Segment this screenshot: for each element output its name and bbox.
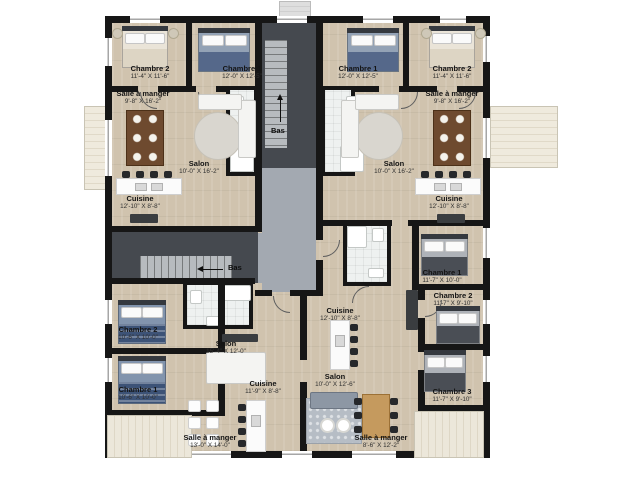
window: [483, 300, 490, 324]
window: [282, 451, 312, 458]
sink: [434, 183, 446, 191]
headboard: [122, 26, 168, 31]
pouf: [320, 418, 335, 433]
sink: [335, 335, 345, 347]
stool: [122, 171, 130, 178]
stool: [449, 171, 457, 178]
room-label-br-salon: Salon 10'-0" X 12'-6": [315, 372, 355, 389]
stool: [150, 171, 158, 178]
headboard: [421, 234, 468, 239]
room-label-tr-salon: Salon 10'-0" X 16'-2": [374, 159, 414, 176]
wall: [403, 23, 409, 86]
kitchen-island: [116, 178, 182, 195]
wall: [300, 296, 307, 360]
wall: [412, 226, 419, 290]
pillow: [374, 35, 396, 46]
left-balcony: [84, 106, 107, 190]
room-name: Chambre 2: [433, 291, 472, 300]
stool: [238, 428, 246, 435]
sink: [251, 415, 261, 427]
room-label-tl-cuisine: Cuisine 12'-10" X 8'-8": [120, 194, 160, 211]
headboard: [429, 26, 475, 31]
room-name: Salon: [374, 159, 414, 168]
headboard: [118, 300, 166, 305]
bed: [436, 306, 480, 344]
room-dims: 12'-10" X 8'-8": [320, 315, 360, 323]
stove: [437, 214, 465, 223]
sofa: [198, 94, 242, 110]
window: [483, 356, 490, 382]
pillow: [439, 313, 458, 324]
room-label-bl-chambre2: Chambre 2 10'-6" X 10'-0": [118, 325, 158, 342]
headboard: [347, 28, 399, 33]
chair: [206, 417, 219, 429]
room-label-tr-chambre1: Chambre 1 12'-0" X 12'-5": [338, 64, 378, 81]
round-rug: [355, 112, 403, 160]
room-dims: 11'-7" X 9'-10": [432, 396, 471, 404]
room-dims: 12'-0" X 12'-5": [338, 73, 378, 81]
kitchen-island: [415, 178, 481, 195]
window: [483, 118, 490, 158]
dining-table: [126, 110, 164, 166]
window: [130, 16, 160, 23]
dining-table: [433, 110, 471, 166]
wall: [316, 260, 323, 290]
stool: [238, 440, 246, 447]
room-name: Chambre 2: [131, 64, 170, 73]
room-dims: 15'-4" X 12'-0": [206, 348, 246, 356]
headboard: [118, 356, 166, 361]
room-dims: 12'-0" X 12'-5": [222, 73, 262, 81]
room-name: Chambre 2: [433, 64, 472, 73]
pillow: [225, 35, 247, 46]
sofa: [355, 94, 399, 110]
stool: [350, 348, 358, 355]
room-label-br-chambre2: Chambre 2 11'-7" X 9'-10": [433, 291, 472, 308]
room-dims: 11'-7" X 9'-10": [433, 300, 472, 308]
pillow: [142, 307, 162, 318]
room-dims: 8'-6" X 12'-2": [355, 442, 408, 450]
room-dims: 10'-6" X 10'-0": [118, 394, 158, 402]
wall: [216, 86, 230, 92]
room-dims: 11'-7" X 10'-0": [422, 277, 461, 285]
pillow: [351, 35, 373, 46]
pillow: [145, 33, 165, 44]
stool: [164, 171, 172, 178]
room-name: Cuisine: [320, 306, 360, 315]
room-name: Salon: [179, 159, 219, 168]
room-label-tl-salle-a-manger: Salle à manger 9'-8" X 16'-2": [117, 89, 170, 106]
pillow: [125, 33, 145, 44]
room-label-bl-cuisine: Cuisine 11'-9" X 8'-8": [245, 379, 281, 396]
window: [363, 16, 393, 23]
room-name: Salle à manger: [184, 433, 237, 442]
bathtub: [221, 285, 251, 301]
pouf: [336, 418, 351, 433]
floor-plan-canvas: Bas Bas Chambre 2 11'-4" X 11'-6" Chambr…: [0, 0, 640, 480]
window: [352, 451, 396, 458]
room-dims: 12'-10" X 8'-8": [120, 203, 160, 211]
pillow: [458, 313, 477, 324]
stairs-down-label: Bas: [228, 263, 242, 272]
chair: [188, 400, 201, 412]
chair: [354, 426, 362, 433]
toilet: [372, 228, 384, 242]
wall: [105, 278, 255, 284]
sink: [450, 183, 462, 191]
room-name: Salon: [315, 372, 355, 381]
pillow: [432, 33, 452, 44]
shower: [347, 226, 367, 248]
room-name: Cuisine: [429, 194, 469, 203]
room-label-tr-cuisine: Cuisine 12'-10" X 8'-8": [429, 194, 469, 211]
wall: [255, 290, 272, 296]
toilet: [190, 290, 202, 304]
room-dims: 9'-8" X 16'-2": [117, 98, 170, 106]
wall: [418, 284, 425, 300]
sink: [368, 268, 384, 278]
bed: [429, 26, 475, 68]
stool: [238, 404, 246, 411]
room-name: Chambre 2: [118, 325, 158, 334]
window: [105, 38, 112, 66]
stove: [130, 214, 158, 223]
sofa: [310, 392, 358, 409]
room-label-tr-salle-a-manger: Salle à manger 9'-8" X 16'-2": [426, 89, 479, 106]
stool: [350, 324, 358, 331]
room-dims: 13'-0" X 14'-0": [184, 442, 237, 450]
chair: [390, 412, 398, 419]
stool: [350, 360, 358, 367]
stool: [421, 171, 429, 178]
headboard: [198, 28, 250, 33]
stool: [463, 171, 471, 178]
pillow: [121, 307, 141, 318]
room-name: Salon: [206, 339, 246, 348]
room-label-tl-salon: Salon 10'-0" X 16'-2": [179, 159, 219, 176]
room-label-bl-salon: Salon 15'-4" X 12'-0": [206, 339, 246, 356]
window: [105, 358, 112, 382]
wall: [316, 220, 392, 226]
room-dims: 11'-4" X 11'-6": [433, 73, 472, 81]
chair: [188, 417, 201, 429]
plant: [475, 28, 486, 39]
room-name: Cuisine: [120, 194, 160, 203]
sink: [135, 183, 147, 191]
room-dims: 12'-10" X 8'-8": [429, 203, 469, 211]
chair: [390, 398, 398, 405]
room-label-br-salle-a-manger: Salle à manger 8'-6" X 12'-2": [355, 433, 408, 450]
pillow: [142, 363, 162, 374]
bed: [424, 350, 466, 392]
room-label-tr-chambre2: Chambre 2 11'-4" X 11'-6": [433, 64, 472, 81]
pillow: [445, 241, 465, 252]
room-name: Chambre 1: [422, 268, 461, 277]
pillow: [427, 357, 445, 368]
window: [483, 36, 490, 62]
chair: [354, 412, 362, 419]
round-rug: [194, 112, 242, 160]
wardrobe: [406, 290, 418, 330]
dining-table: [362, 394, 390, 438]
stairs-up-arrow-icon: [280, 100, 281, 122]
pillow: [452, 33, 472, 44]
wall: [255, 16, 262, 226]
pillow: [424, 241, 444, 252]
window: [105, 120, 112, 176]
stairs-down-label: Bas: [271, 126, 285, 135]
room-name: Cuisine: [245, 379, 281, 388]
room-name: Salle à manger: [117, 89, 170, 98]
headboard: [424, 350, 466, 355]
plant: [112, 28, 123, 39]
room-label-tl-chambre1: Chambre 1 12'-0" X 12'-5": [222, 64, 262, 81]
plant: [421, 28, 432, 39]
room-dims: 10'-6" X 10'-0": [118, 334, 158, 342]
room-dims: 9'-8" X 16'-2": [426, 98, 479, 106]
room-label-br-chambre1: Chambre 1 11'-7" X 10'-0": [422, 268, 461, 285]
room-label-br-cuisine: Cuisine 12'-10" X 8'-8": [320, 306, 360, 323]
pillow: [445, 357, 463, 368]
room-label-bl-salle-a-manger: Salle à manger 13'-0" X 14'-0": [184, 433, 237, 450]
room-label-bl-chambre1: Chambre 1 10'-6" X 10'-0": [118, 385, 158, 402]
room-name: Chambre 1: [338, 64, 378, 73]
room-name: Chambre 1: [118, 385, 158, 394]
room-name: Chambre 3: [432, 387, 471, 396]
chair: [390, 426, 398, 433]
stool: [238, 416, 246, 423]
wall: [186, 23, 192, 86]
window: [440, 16, 466, 23]
window: [105, 300, 112, 324]
room-dims: 11'-4" X 11'-6": [131, 73, 170, 81]
window: [483, 228, 490, 258]
bottom-right-deck: [414, 411, 484, 458]
right-deck: [490, 106, 558, 168]
pillow: [121, 363, 141, 374]
pillow: [202, 35, 224, 46]
stool: [136, 171, 144, 178]
bed: [122, 26, 168, 68]
bottom-left-deck: [107, 415, 192, 458]
room-dims: 11'-9" X 8'-8": [245, 388, 281, 396]
stool: [435, 171, 443, 178]
blanket: [437, 326, 479, 343]
kitchen-island: [330, 320, 350, 370]
stairs-left-arrow-icon: [203, 269, 223, 270]
kitchen-island: [246, 400, 266, 452]
room-dims: 10'-0" X 12'-6": [315, 381, 355, 389]
central-corridor: [262, 168, 316, 292]
wall: [316, 16, 323, 220]
plant: [168, 28, 179, 39]
entry-door-opening: [277, 16, 307, 23]
stool: [350, 336, 358, 343]
room-dims: 10'-0" X 16'-2": [374, 168, 414, 176]
room-label-tl-chambre2: Chambre 2 11'-4" X 11'-6": [131, 64, 170, 81]
wall: [112, 348, 218, 354]
room-name: Chambre 1: [222, 64, 262, 73]
room-name: Salle à manger: [426, 89, 479, 98]
room-label-br-chambre3: Chambre 3 11'-7" X 9'-10": [432, 387, 471, 404]
chair: [354, 398, 362, 405]
chair: [206, 400, 219, 412]
sink: [151, 183, 163, 191]
wall: [355, 86, 379, 92]
room-name: Salle à manger: [355, 433, 408, 442]
wall: [316, 226, 323, 240]
room-dims: 10'-0" X 16'-2": [179, 168, 219, 176]
wall: [105, 226, 262, 232]
